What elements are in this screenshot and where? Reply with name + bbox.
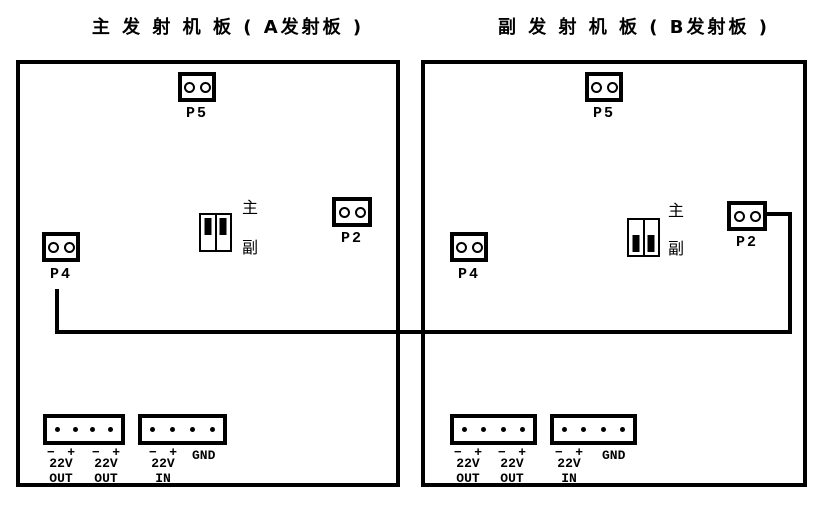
board-a-title: 主 发 射 机 板 ( A发射板 ) [36, 13, 420, 39]
pin-dot-icon [501, 427, 506, 432]
pin-dot-icon [581, 427, 586, 432]
direction-label: OUT [44, 472, 78, 486]
voltage-label: 22V [451, 457, 485, 471]
pin-hole-icon [48, 242, 59, 253]
pin-hole-icon [591, 82, 602, 93]
power-column: − + 22V OUT [495, 448, 529, 486]
connector-p2-label: P2 [332, 230, 372, 247]
voltage-label: 22V [495, 457, 529, 471]
jumper-pin-icon [648, 235, 655, 252]
jumper-cell [629, 220, 643, 255]
voltage-label: 22V [552, 457, 586, 471]
jumper-pin-icon [632, 235, 639, 252]
jumper-cell [643, 220, 659, 255]
power-column: − + 22V OUT [89, 448, 123, 486]
diagram-canvas: 主 发 射 机 板 ( A发射板 ) 副 发 射 机 板 ( B发射板 ) P5… [0, 0, 820, 509]
board-b-outline: P5 P2 P4 主 副 [421, 60, 807, 487]
pin-dot-icon [601, 427, 606, 432]
jumper-sub-label: 副 [668, 240, 684, 257]
connector-p5-label: P5 [585, 105, 623, 122]
direction-label: IN [552, 472, 586, 486]
direction-label: IN [146, 472, 180, 486]
pin-dot-icon [210, 427, 215, 432]
connector-p4-label: P4 [42, 266, 80, 283]
pin-dot-icon [462, 427, 467, 432]
jumper-pin-icon [220, 218, 227, 235]
power-connector [450, 414, 537, 445]
board-a-outline: P5 P2 P4 主 副 [16, 60, 400, 487]
connector-p4 [42, 232, 80, 262]
pin-hole-icon [184, 82, 195, 93]
power-column: − + 22V OUT [44, 448, 78, 486]
direction-label: OUT [451, 472, 485, 486]
direction-label: OUT [495, 472, 529, 486]
jumper-pin-icon [204, 218, 211, 235]
pin-dot-icon [90, 427, 95, 432]
pin-hole-icon [607, 82, 618, 93]
connector-p2 [332, 197, 372, 227]
wire-segment-p4-drop [55, 289, 59, 334]
jumper-sub-label: 副 [242, 239, 258, 256]
pin-hole-icon [339, 207, 350, 218]
pin-dot-icon [562, 427, 567, 432]
pin-hole-icon [456, 242, 467, 253]
pin-hole-icon [734, 211, 745, 222]
pin-hole-icon [750, 211, 761, 222]
wire-segment-horizontal [55, 330, 792, 334]
pin-dot-icon [108, 427, 113, 432]
direction-label: OUT [89, 472, 123, 486]
pin-dot-icon [170, 427, 175, 432]
gnd-label: GND [192, 448, 215, 463]
gnd-label: GND [602, 448, 625, 463]
jumper-block [199, 213, 232, 252]
pin-dot-icon [150, 427, 155, 432]
power-connector [43, 414, 125, 445]
jumper-main-label: 主 [668, 202, 684, 219]
connector-p5-label: P5 [178, 105, 216, 122]
connector-p5 [585, 72, 623, 102]
wire-segment-p2-riser [788, 212, 792, 334]
pin-hole-icon [355, 207, 366, 218]
jumper-cell [201, 215, 215, 250]
pin-dot-icon [481, 427, 486, 432]
voltage-label: 22V [146, 457, 180, 471]
pin-dot-icon [190, 427, 195, 432]
wire-segment-p2-stub [765, 212, 792, 216]
power-column: − + 22V IN [552, 448, 586, 486]
pin-dot-icon [620, 427, 625, 432]
pin-dot-icon [520, 427, 525, 432]
pin-hole-icon [200, 82, 211, 93]
pin-dot-icon [73, 427, 78, 432]
connector-p4 [450, 232, 488, 262]
voltage-label: 22V [89, 457, 123, 471]
connector-p4-label: P4 [450, 266, 488, 283]
power-column: − + 22V OUT [451, 448, 485, 486]
jumper-block [627, 218, 660, 257]
pin-hole-icon [472, 242, 483, 253]
pin-dot-icon [55, 427, 60, 432]
connector-p2 [727, 201, 767, 231]
pin-hole-icon [64, 242, 75, 253]
connector-p5 [178, 72, 216, 102]
connector-p2-label: P2 [727, 234, 767, 251]
board-b-title: 副 发 射 机 板 ( B发射板 ) [441, 13, 820, 39]
power-connector [550, 414, 637, 445]
voltage-label: 22V [44, 457, 78, 471]
power-connector [138, 414, 227, 445]
jumper-main-label: 主 [242, 199, 258, 216]
jumper-cell [215, 215, 231, 250]
power-column: − + 22V IN [146, 448, 180, 486]
